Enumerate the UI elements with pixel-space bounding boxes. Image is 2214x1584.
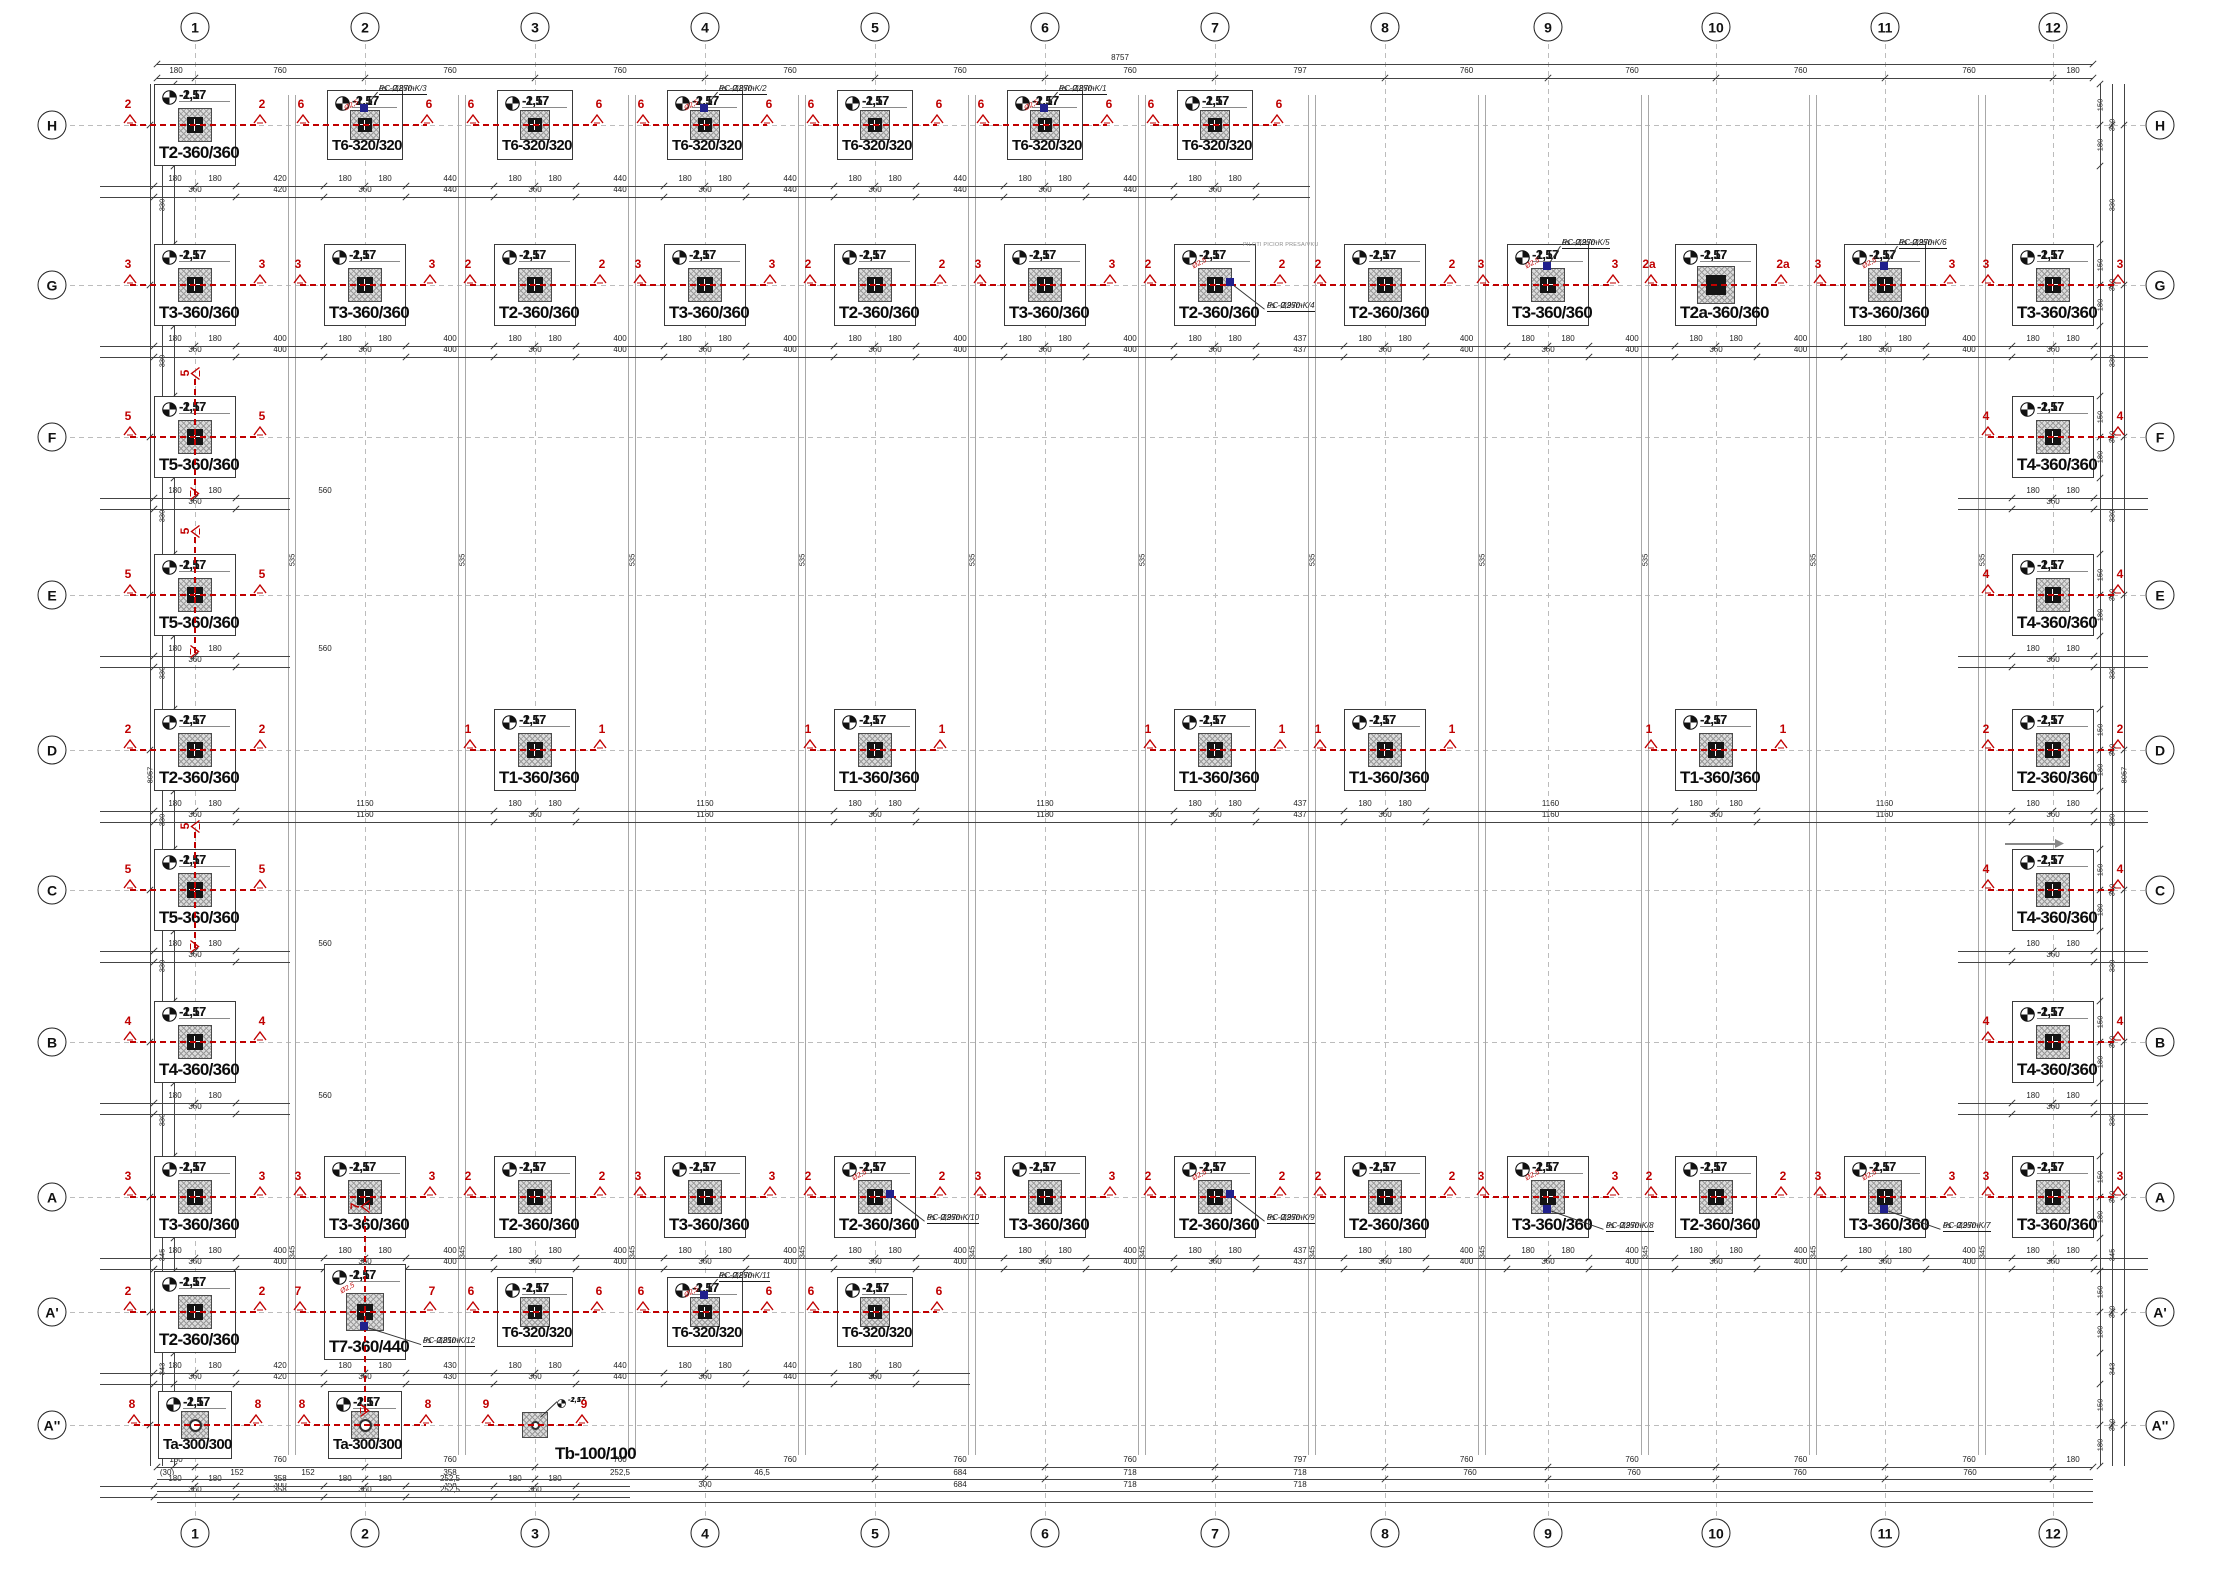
dim-label: 358 [272, 1486, 287, 1494]
section-flag-icon [1272, 272, 1288, 285]
dim-label: 684 [952, 1469, 967, 1477]
level-datum-icon [162, 250, 177, 265]
dim-label: 180 [167, 645, 182, 653]
section-flag-icon [1773, 272, 1789, 285]
footing-D10-section-line [1651, 749, 1781, 751]
footing-A9-section-number-right: 3 [1612, 1170, 1619, 1182]
level-datum-icon [1352, 715, 1367, 730]
footing-H3-section-number-right: 6 [596, 98, 603, 110]
footing-F12-section-line [1988, 436, 2118, 438]
grid-bubble-right-A'': A'' [2146, 1411, 2175, 1440]
dim-label: 760 [272, 1456, 287, 1464]
grid-bubble-left-A'': A'' [38, 1411, 67, 1440]
footing-A1-section-number-left: 3 [125, 1170, 132, 1182]
dim-label: 400 [612, 1247, 627, 1255]
section-flag-icon [1475, 1184, 1491, 1197]
footing-D5-section-line [810, 749, 940, 751]
level-datum-icon [1185, 96, 1200, 111]
footing-H5-label: T6-320/320 [842, 138, 912, 153]
footing-G4-level-lower: -2,17 [689, 248, 716, 262]
footing-F1-section-number-right: 5 [259, 410, 266, 422]
dim-label: 180 [717, 1362, 732, 1370]
dim-label: 180 [2065, 645, 2080, 653]
footing-F1-level-lower: -2,17 [179, 400, 206, 414]
footing-G9-pile-note-level: os -0,97m [1562, 238, 1598, 248]
dim-label: 180 [337, 1362, 352, 1370]
dim-label: 430 [442, 1362, 457, 1370]
section-flag-icon [422, 1299, 438, 1312]
row-chain [440, 357, 630, 358]
level-datum-icon [2020, 1007, 2035, 1022]
footing-D8-level-lower: -2,17 [1369, 713, 1396, 727]
footing-A'1-section-line [130, 1311, 260, 1313]
footing-A'5-section-number-left: 6 [808, 1285, 815, 1297]
row-chain [1120, 357, 1310, 358]
footing-G9-label: T3-360/360 [1512, 304, 1592, 321]
footing-F1-section-line-vert [194, 379, 196, 495]
dim-label: 180 [2065, 1247, 2080, 1255]
dim-label: 180 [337, 335, 352, 343]
footing-G1-section-number-left: 3 [125, 258, 132, 270]
dim-label: 180 [547, 1362, 562, 1370]
section-flag-icon [422, 272, 438, 285]
level-datum-icon [2020, 715, 2035, 730]
footing-B1-label: T4-360/360 [159, 1061, 239, 1078]
dim-label: 760 [442, 1456, 457, 1464]
footing-A10-section-line [1651, 1196, 1781, 1198]
section-flag-icon [480, 1412, 496, 1425]
dim-label: 400 [272, 1258, 287, 1266]
dim-label: 180 [337, 175, 352, 183]
footing-G5-section-line [810, 284, 940, 286]
grid-bubble-top-4: 4 [691, 13, 720, 42]
section-flag-icon [1773, 1184, 1789, 1197]
footing-H3-label: T6-320/320 [502, 138, 572, 153]
dim-label: 400 [1459, 335, 1474, 343]
section-flag-icon [1102, 272, 1118, 285]
section-flag-icon [252, 272, 268, 285]
section-flag-icon [292, 1184, 308, 1197]
dim-label: 400 [442, 346, 457, 354]
row-chain [610, 1384, 800, 1385]
dim-label: 180 [847, 1247, 862, 1255]
footing-G11-pile [1880, 262, 1888, 270]
footing-H1-label: T2-360/360 [159, 144, 239, 161]
section-flag-icon [1643, 272, 1659, 285]
dim-label: 1160 [1541, 800, 1560, 808]
level-datum-icon [162, 90, 177, 105]
level-datum-icon [162, 1277, 177, 1292]
dim-label: 180 [847, 175, 862, 183]
footing-A'5-section-number-right: 6 [936, 1285, 943, 1297]
footing-A3-section-number-left: 2 [465, 1170, 472, 1182]
dim-label: 180 [1017, 1247, 1032, 1255]
row-chain [950, 197, 1140, 198]
section-flag-icon [1142, 1184, 1158, 1197]
dim-label: 180 [847, 800, 862, 808]
section-flag-icon [462, 272, 478, 285]
footing-A4-section-number-left: 3 [635, 1170, 642, 1182]
level-datum-icon [1012, 1162, 1027, 1177]
row-chain [1120, 822, 1310, 823]
footing-A'2-pile [360, 1322, 368, 1330]
dim-label: 440 [612, 1373, 627, 1381]
row-chain [1453, 1269, 1643, 1270]
footing-A5-pile-note-level: os -0,97m [927, 1213, 963, 1223]
section-flag-icon [2110, 582, 2126, 595]
dim-label: 400 [782, 1247, 797, 1255]
footing-A'4-label: T6-320/320 [672, 1325, 742, 1340]
footing-A9-pile [1543, 1205, 1551, 1213]
dim-label: 180 [1688, 335, 1703, 343]
footing-D8-label: T1-360/360 [1349, 769, 1429, 786]
footing-A'1-label: T2-360/360 [159, 1331, 239, 1348]
footing-G9-section-line [1483, 284, 1613, 286]
footing-A11-section-number-left: 3 [1815, 1170, 1822, 1182]
footing-G6-section-line [980, 284, 1110, 286]
dim-label: 400 [1793, 335, 1808, 343]
footing-A12-label: T3-360/360 [2017, 1216, 2097, 1233]
dim-label: 437 [1292, 811, 1307, 819]
row-chain [100, 1114, 290, 1115]
footing-G5-label: T2-360/360 [839, 304, 919, 321]
row-chain [610, 197, 800, 198]
footing-D5-label: T1-360/360 [839, 769, 919, 786]
section-flag-icon [802, 272, 818, 285]
row-chain [100, 1269, 290, 1270]
footing-G4-section-number-right: 3 [769, 258, 776, 270]
dim-label: 420 [272, 175, 287, 183]
footing-C12-section-number-right: 4 [2117, 863, 2124, 875]
footing-G7-section-line [1150, 284, 1280, 286]
footing-F12-label: T4-360/360 [2017, 456, 2097, 473]
footing-A''2-section-number-right: 8 [425, 1398, 432, 1410]
row-chain [780, 197, 970, 198]
row-chain [440, 1384, 630, 1385]
grid-line-row-D [70, 750, 2146, 751]
footing-A12-section-number-right: 3 [2117, 1170, 2124, 1182]
footing-F1-section-number-top: 5 [179, 370, 191, 377]
footing-D12-section-number-left: 2 [1983, 723, 1990, 735]
footing-H6-pile [1040, 104, 1048, 112]
grid-bubble-top-10: 10 [1702, 13, 1731, 42]
dim-label: 560 [317, 487, 332, 495]
section-flag-icon [1312, 737, 1328, 750]
dim-label: 180 [717, 1247, 732, 1255]
section-flag-icon [1980, 877, 1996, 890]
dim-label: 440 [782, 175, 797, 183]
section-flag-icon [1643, 1184, 1659, 1197]
level-datum-icon [1352, 250, 1367, 265]
dim-tick [2089, 74, 2096, 81]
footing-D8-section-number-left: 1 [1315, 723, 1322, 735]
footing-A12-section-number-left: 3 [1983, 1170, 1990, 1182]
interior-chain-line [975, 95, 976, 1455]
footing-G7-pile-note-level: os -0,97m [1267, 301, 1303, 311]
grid-bubble-left-H: H [38, 111, 67, 140]
footing-G11-pile-note-level: os -0,97m [1899, 238, 1935, 248]
section-flag-icon [635, 112, 651, 125]
section-flag-icon [295, 112, 311, 125]
dim-label: 760 [1122, 67, 1137, 75]
dim-label: 760 [1459, 67, 1474, 75]
row-chain [100, 667, 290, 668]
section-flag-icon [1442, 272, 1458, 285]
section-flag-icon [252, 1029, 268, 1042]
footing-G12-section-number-right: 3 [2117, 258, 2124, 270]
grid-bubble-top-6: 6 [1031, 13, 1060, 42]
bottom-dim-line-3 [157, 1491, 2093, 1492]
dim-label: 400 [952, 1258, 967, 1266]
footing-H6-section-line [983, 124, 1107, 126]
grid-bubble-left-C: C [38, 876, 67, 905]
footing-C12-level-lower: -2,17 [2037, 853, 2064, 867]
dim-label: 180 [1017, 175, 1032, 183]
section-flag-icon [122, 1184, 138, 1197]
row-chain [1480, 822, 1621, 823]
row-chain [440, 197, 630, 198]
section-flag-icon [122, 1029, 138, 1042]
dim-label: 400 [1459, 1247, 1474, 1255]
section-flag-icon [975, 112, 991, 125]
footing-H5-level-lower: -2,17 [862, 94, 889, 108]
section-flag-icon [126, 1412, 142, 1425]
dim-label: 400 [272, 1247, 287, 1255]
footing-A''3-section-number-left: 9 [483, 1398, 490, 1410]
row-chain [270, 1497, 460, 1498]
footing-H5-section-number-right: 6 [936, 98, 943, 110]
level-datum-icon [1012, 250, 1027, 265]
dim-label: 440 [952, 175, 967, 183]
dim-label: 180 [717, 175, 732, 183]
footing-G7-gray-note: PILOTI PICIOR PRESA/VKU [1243, 243, 1319, 249]
row-chain [440, 1269, 630, 1270]
section-flag-icon [592, 272, 608, 285]
footing-G6-label: T3-360/360 [1009, 304, 1089, 321]
footing-A3-label: T2-360/360 [499, 1216, 579, 1233]
dim-label: 760 [1462, 1469, 1477, 1477]
footing-H5-section-number-left: 6 [808, 98, 815, 110]
dim-label: 180 [1357, 335, 1372, 343]
footing-A9-label: T3-360/360 [1512, 1216, 1592, 1233]
footing-G7-pile [1226, 278, 1234, 286]
footing-H1-section-number-left: 2 [125, 98, 132, 110]
dim-label: 180 [677, 1247, 692, 1255]
footing-D10-section-number-right: 1 [1780, 723, 1787, 735]
footing-A10-section-number-left: 2 [1646, 1170, 1653, 1182]
section-flag-icon [972, 272, 988, 285]
section-flag-icon [589, 1299, 605, 1312]
row-chain [950, 1269, 1140, 1270]
section-flag-icon [252, 112, 268, 125]
footing-E1-section-number-left: 5 [125, 568, 132, 580]
dim-label: 180 [207, 487, 222, 495]
level-datum-icon [672, 1162, 687, 1177]
grid-bubble-bottom-7: 7 [1201, 1519, 1230, 1548]
grid-bubble-right-D: D [2146, 736, 2175, 765]
dim-label: 180 [887, 175, 902, 183]
footing-D3-level-lower: -2,17 [519, 713, 546, 727]
footing-D7-section-line [1150, 749, 1280, 751]
footing-D3-section-number-right: 1 [599, 723, 606, 735]
interior-chain-line [1985, 95, 1986, 1455]
interior-chain-line [288, 95, 289, 1455]
footing-A''1-section-number-right: 8 [255, 1398, 262, 1410]
footing-D10-section-number-left: 1 [1646, 723, 1653, 735]
footing-A'4-section-number-right: 6 [766, 1285, 773, 1297]
dim-label: 400 [1624, 335, 1639, 343]
level-datum-icon [505, 96, 520, 111]
footing-E12-label: T4-360/360 [2017, 614, 2097, 631]
grid-bubble-bottom-1: 1 [181, 1519, 210, 1548]
dim-label: 400 [1122, 1258, 1137, 1266]
footing-H6-pile-note-level: os -0,87m [1059, 84, 1095, 94]
footing-A'3-section-line [473, 1311, 597, 1313]
footing-D7-level-lower: -2,17 [1199, 713, 1226, 727]
row-chain [970, 822, 1120, 823]
grid-bubble-left-A': A' [38, 1298, 67, 1327]
dim-label: 180 [207, 1362, 222, 1370]
dim-label: 180 [1688, 1247, 1703, 1255]
footing-A'5-label: T6-320/320 [842, 1325, 912, 1340]
dim-label: 760 [1459, 1456, 1474, 1464]
footing-G10-label: T2a-360/360 [1680, 304, 1769, 321]
footing-H6-section-number-right: 6 [1106, 98, 1113, 110]
footing-D12-label: T2-360/360 [2017, 769, 2097, 786]
footing-A7-pile [1226, 1190, 1234, 1198]
interior-chain-line [1648, 95, 1649, 1455]
footing-C1-level-lower: -2,17 [179, 853, 206, 867]
dim-label: 180 [167, 1362, 182, 1370]
row-chain [950, 357, 1140, 358]
row-chain [1958, 1114, 2148, 1115]
dim-label: 180 [167, 175, 182, 183]
grid-bubble-left-A: A [38, 1183, 67, 1212]
footing-C12-section-line [1988, 889, 2118, 891]
dim-label: 180 [887, 800, 902, 808]
footing-A1-level-lower: -2,17 [179, 1160, 206, 1174]
row-chain [780, 1384, 970, 1385]
row-chain [1811, 811, 1958, 812]
dim-label: 180 [1520, 335, 1535, 343]
section-flag-icon [1272, 1184, 1288, 1197]
footing-A7-pile-note-level: os -0,97m [1267, 1213, 1303, 1223]
section-flag-icon [932, 737, 948, 750]
grid-bubble-top-11: 11 [1871, 13, 1900, 42]
dim-label: 180 [677, 335, 692, 343]
grid-line-row-E [70, 595, 2146, 596]
section-flag-icon [932, 272, 948, 285]
dim-label: 180 [167, 1247, 182, 1255]
interior-chain-line [1308, 95, 1309, 1455]
level-datum-icon [502, 250, 517, 265]
footing-G2-section-line [300, 284, 430, 286]
footing-H7-label: T6-320/320 [1182, 138, 1252, 153]
footing-C12-section-number-left: 4 [1983, 863, 1990, 875]
row-chain [100, 509, 290, 510]
dim-label: 180 [167, 487, 182, 495]
grid-bubble-top-12: 12 [2039, 13, 2068, 42]
dim-label: 400 [1793, 1258, 1808, 1266]
level-datum-icon [332, 1162, 347, 1177]
dim-label: 180 [1560, 335, 1575, 343]
dim-label: 760 [1793, 1456, 1808, 1464]
row-chain [1480, 811, 1621, 812]
footing-A'2-label: T7-360/440 [329, 1338, 409, 1355]
dim-label: 180 [547, 175, 562, 183]
bottom-dim-line-1 [157, 1467, 2093, 1468]
row-chain [1790, 357, 1980, 358]
section-flag-icon [122, 737, 138, 750]
dim-label: 400 [1961, 346, 1976, 354]
footing-G10-section-line [1651, 284, 1781, 286]
section-flag-icon [2110, 1184, 2126, 1197]
dim-label: 760 [782, 67, 797, 75]
footing-A1-section-line [130, 1196, 260, 1198]
footing-H1-section-line [130, 124, 260, 126]
row-chain [440, 1497, 630, 1498]
grid-bubble-top-5: 5 [861, 13, 890, 42]
dim-label: 180 [547, 800, 562, 808]
footing-D3-section-line [470, 749, 600, 751]
footing-A'5-section-line [813, 1311, 937, 1313]
section-flag-icon [1643, 737, 1659, 750]
footing-A9-section-number-left: 3 [1478, 1170, 1485, 1182]
level-datum-icon [672, 250, 687, 265]
footing-G1-section-line [130, 284, 260, 286]
footing-H6-label: T6-320/320 [1012, 138, 1082, 153]
interior-chain-line [1978, 95, 1979, 1455]
row-chain [1290, 357, 1480, 358]
footing-H7-section-number-left: 6 [1148, 98, 1155, 110]
dim-label: 180 [1227, 1247, 1242, 1255]
dim-label: 180 [1520, 1247, 1535, 1255]
section-flag-icon [189, 486, 202, 502]
footing-A''1-level-lower: -2,17 [183, 1395, 210, 1409]
dim-label: 180 [887, 335, 902, 343]
dim-label: 400 [1122, 1247, 1137, 1255]
dim-label: 1160 [1541, 811, 1560, 819]
footing-A8-section-line [1320, 1196, 1450, 1198]
dim-label: 180 [677, 1362, 692, 1370]
interior-chain-line [1138, 95, 1139, 1455]
dim-label: 180 [1728, 1247, 1743, 1255]
footing-B12-section-number-left: 4 [1983, 1015, 1990, 1027]
dim-label: 180 [547, 1247, 562, 1255]
level-datum-icon [162, 402, 177, 417]
dim-label: 400 [1961, 1247, 1976, 1255]
dim-label: 180 [1187, 800, 1202, 808]
dim-label: 180 [2065, 1456, 2080, 1464]
footing-A'5-level-lower: -2,17 [862, 1281, 889, 1295]
footing-G2-label: T3-360/360 [329, 304, 409, 321]
footing-A9-pile-note-level: os -0,97m [1606, 1221, 1642, 1231]
grid-bubble-right-A: A [2146, 1183, 2175, 1212]
grid-bubble-left-B: B [38, 1028, 67, 1057]
footing-H7-section-line [1153, 124, 1277, 126]
row-chain [270, 357, 460, 358]
level-datum-icon [842, 250, 857, 265]
dim-label: 437 [1292, 335, 1307, 343]
footing-D7-section-number-left: 1 [1145, 723, 1152, 735]
dim-label: 46,5 [753, 1469, 771, 1477]
dim-label: 718 [1292, 1469, 1307, 1477]
footing-H2-section-number-right: 6 [426, 98, 433, 110]
interior-chain-line [458, 95, 459, 1455]
dim-label: 180 [1357, 1247, 1372, 1255]
dim-tick [2089, 60, 2096, 67]
footing-A5-label: T2-360/360 [839, 1216, 919, 1233]
